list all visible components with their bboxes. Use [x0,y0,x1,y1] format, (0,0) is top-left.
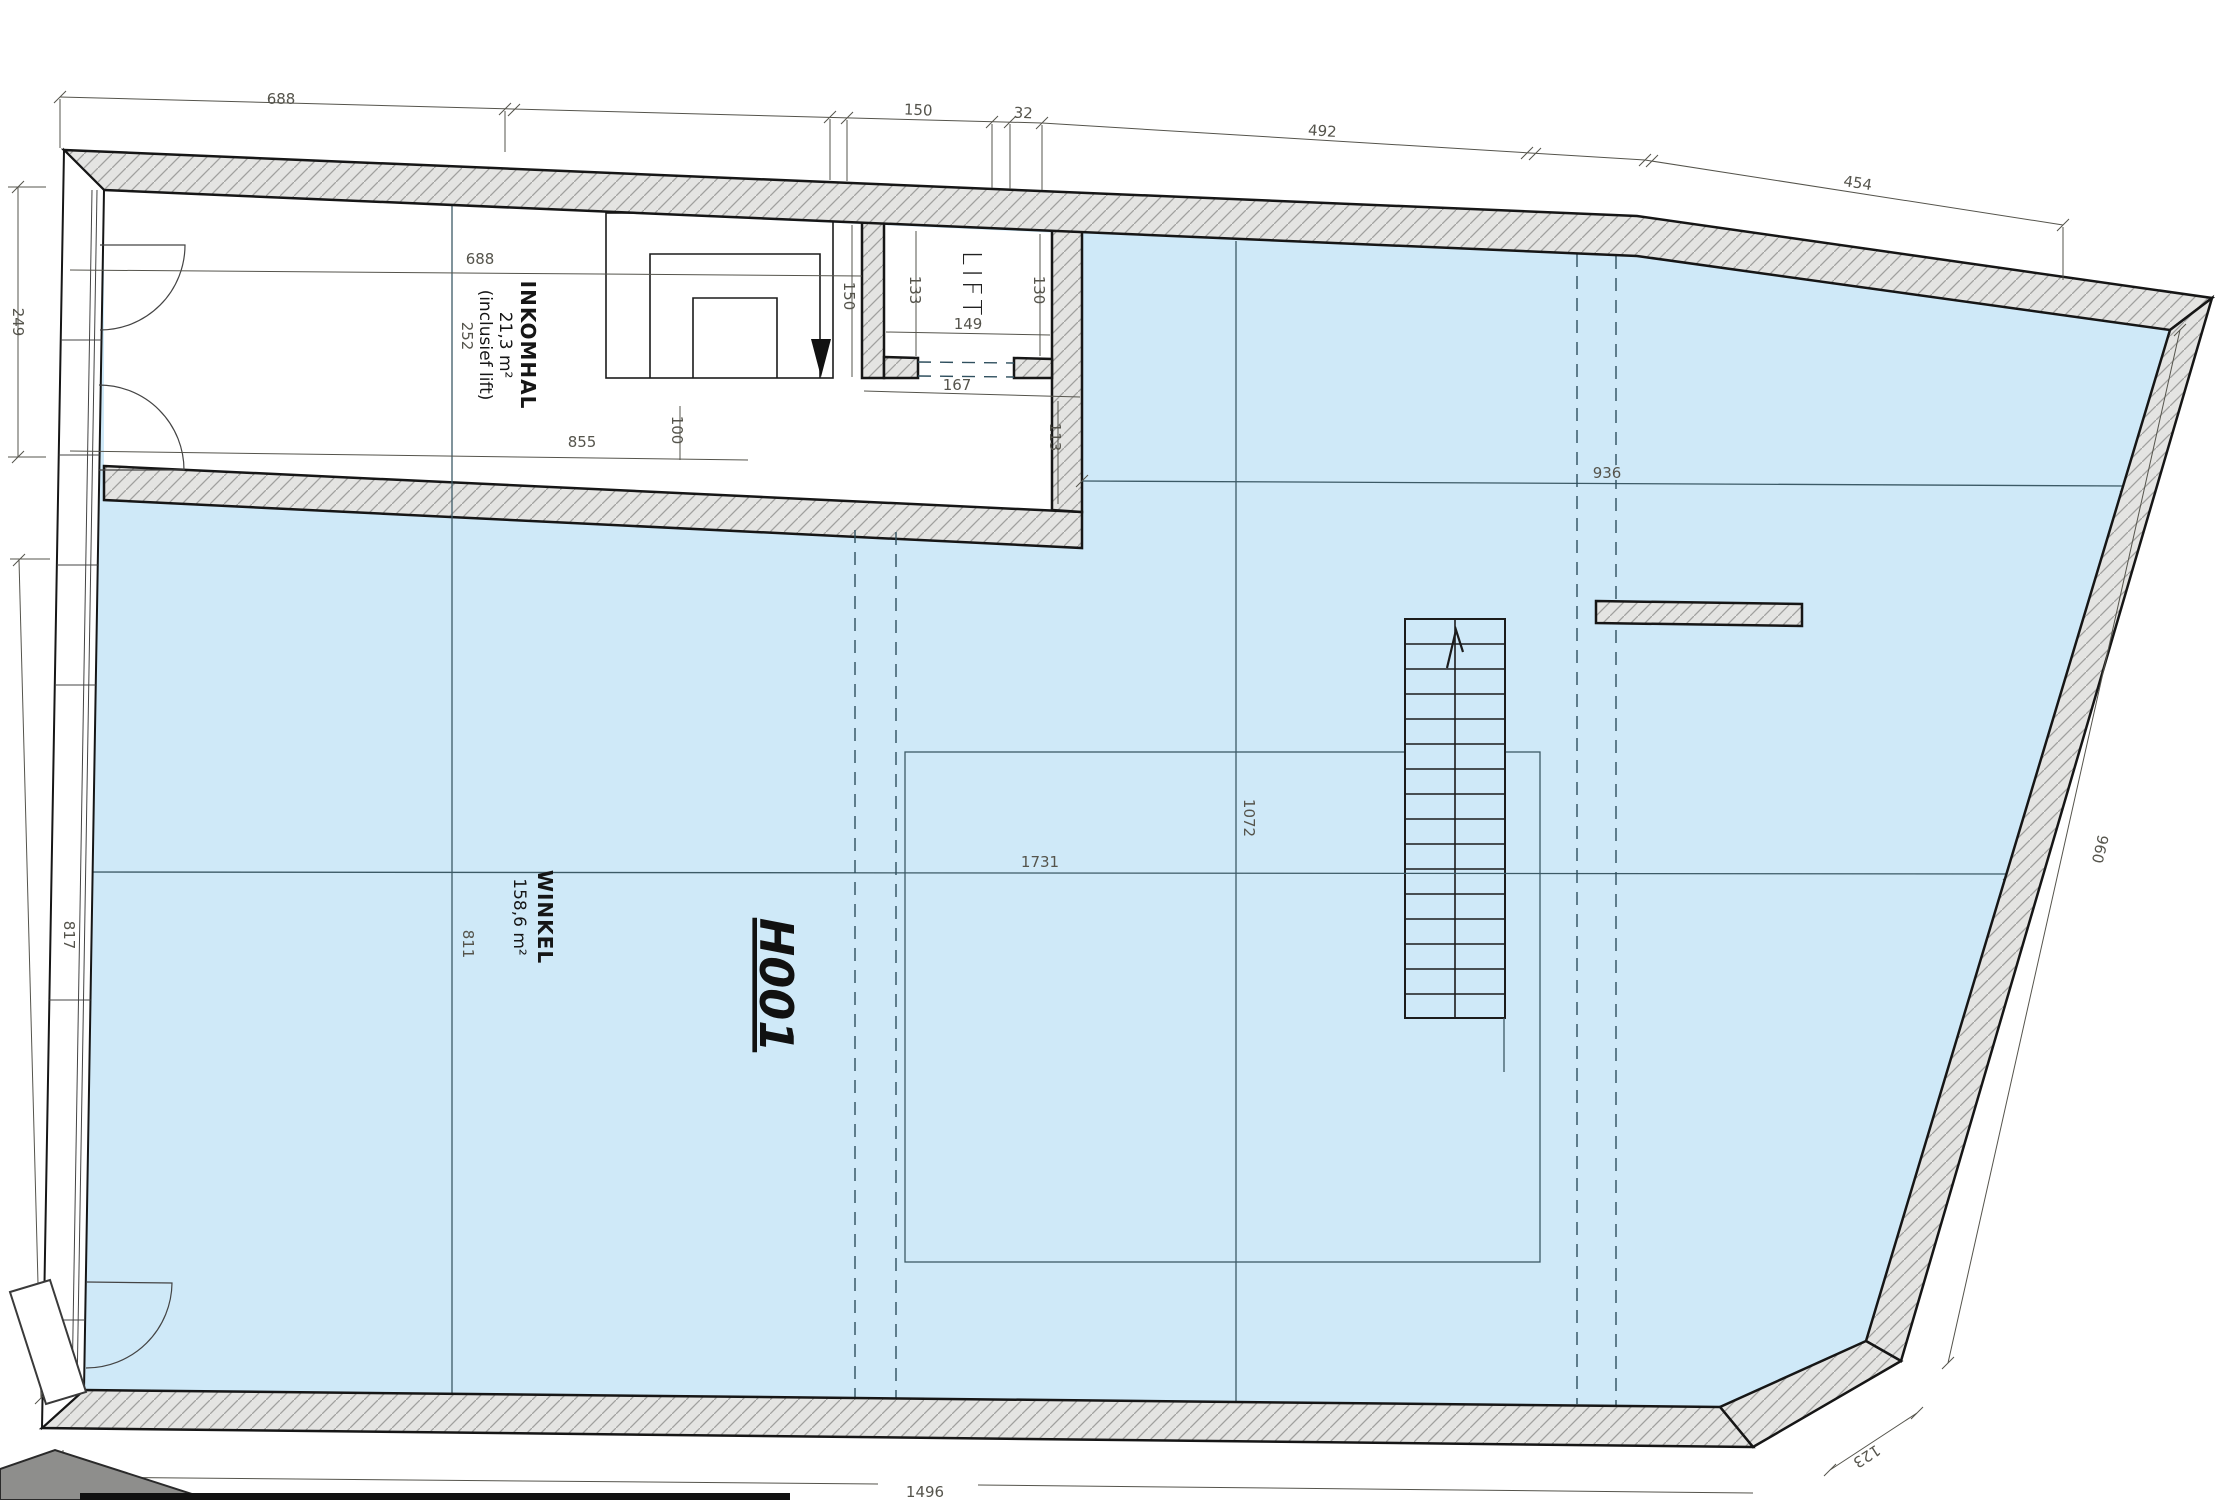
dim-bottom-1496: 1496 [906,1483,944,1500]
room-code-h001: H001 [749,918,803,1053]
entrance-hall-block [104,190,1082,548]
room-label-lift: LIFT [956,251,986,320]
room-label-inkomhal-area: 21,3 m² [495,312,515,379]
lift-east-wall [1052,230,1082,512]
stair-lift-divider-wall [862,222,884,378]
dim-top-454: 454 [1842,172,1873,194]
dim-top-492: 492 [1307,121,1337,141]
dim-lift-d: 149 [954,315,983,333]
dim-lift-front: 167 [943,376,972,394]
dim-lift-w1: 133 [906,276,924,305]
room-label-winkel-area: 158,6 m² [509,878,529,955]
dim-top-32: 32 [1013,104,1033,123]
dim-shop-depth: 1072 [1240,799,1258,837]
dim-top-688: 688 [267,90,296,108]
room-label-inkomhal-note: (inclusief lift) [475,290,495,401]
dim-stair-run: 150 [840,282,858,311]
freestanding-wall-piece [1596,601,1802,626]
dim-shop-width: 1731 [1021,853,1059,871]
lift-door-stub-west [884,357,918,378]
dim-hall-depth: 252 [458,322,476,351]
dim-hall-step: 100 [668,416,686,445]
room-label-winkel: WINKEL [533,870,557,964]
dim-hall-width: 688 [466,250,495,268]
dim-right-960: 960 [2088,833,2112,865]
shop-staircase [1405,619,1505,1072]
left-dimension-817 [19,560,41,1398]
dim-lift-w2: 130 [1030,276,1048,305]
dim-shop-front-depth: 811 [459,930,477,959]
dim-hall-floor: 855 [568,433,597,451]
neighbour-wall-solid [0,1450,192,1500]
dim-top-150: 150 [904,100,933,119]
dim-left-249: 249 [9,308,27,337]
dim-left-817: 817 [60,921,78,950]
floor-plan-svg: INKOMHAL 21,3 m² (inclusief lift) LIFT W… [0,0,2233,1500]
lift-door-stub-east [1014,358,1052,378]
bottom-edge-element [80,1493,790,1500]
floor-plan-canvas: INKOMHAL 21,3 m² (inclusief lift) LIFT W… [0,0,2233,1500]
dim-lobby: 113 [1046,423,1064,452]
dim-shop-back-width: 936 [1593,464,1622,482]
room-label-inkomhal: INKOMHAL [516,281,540,410]
